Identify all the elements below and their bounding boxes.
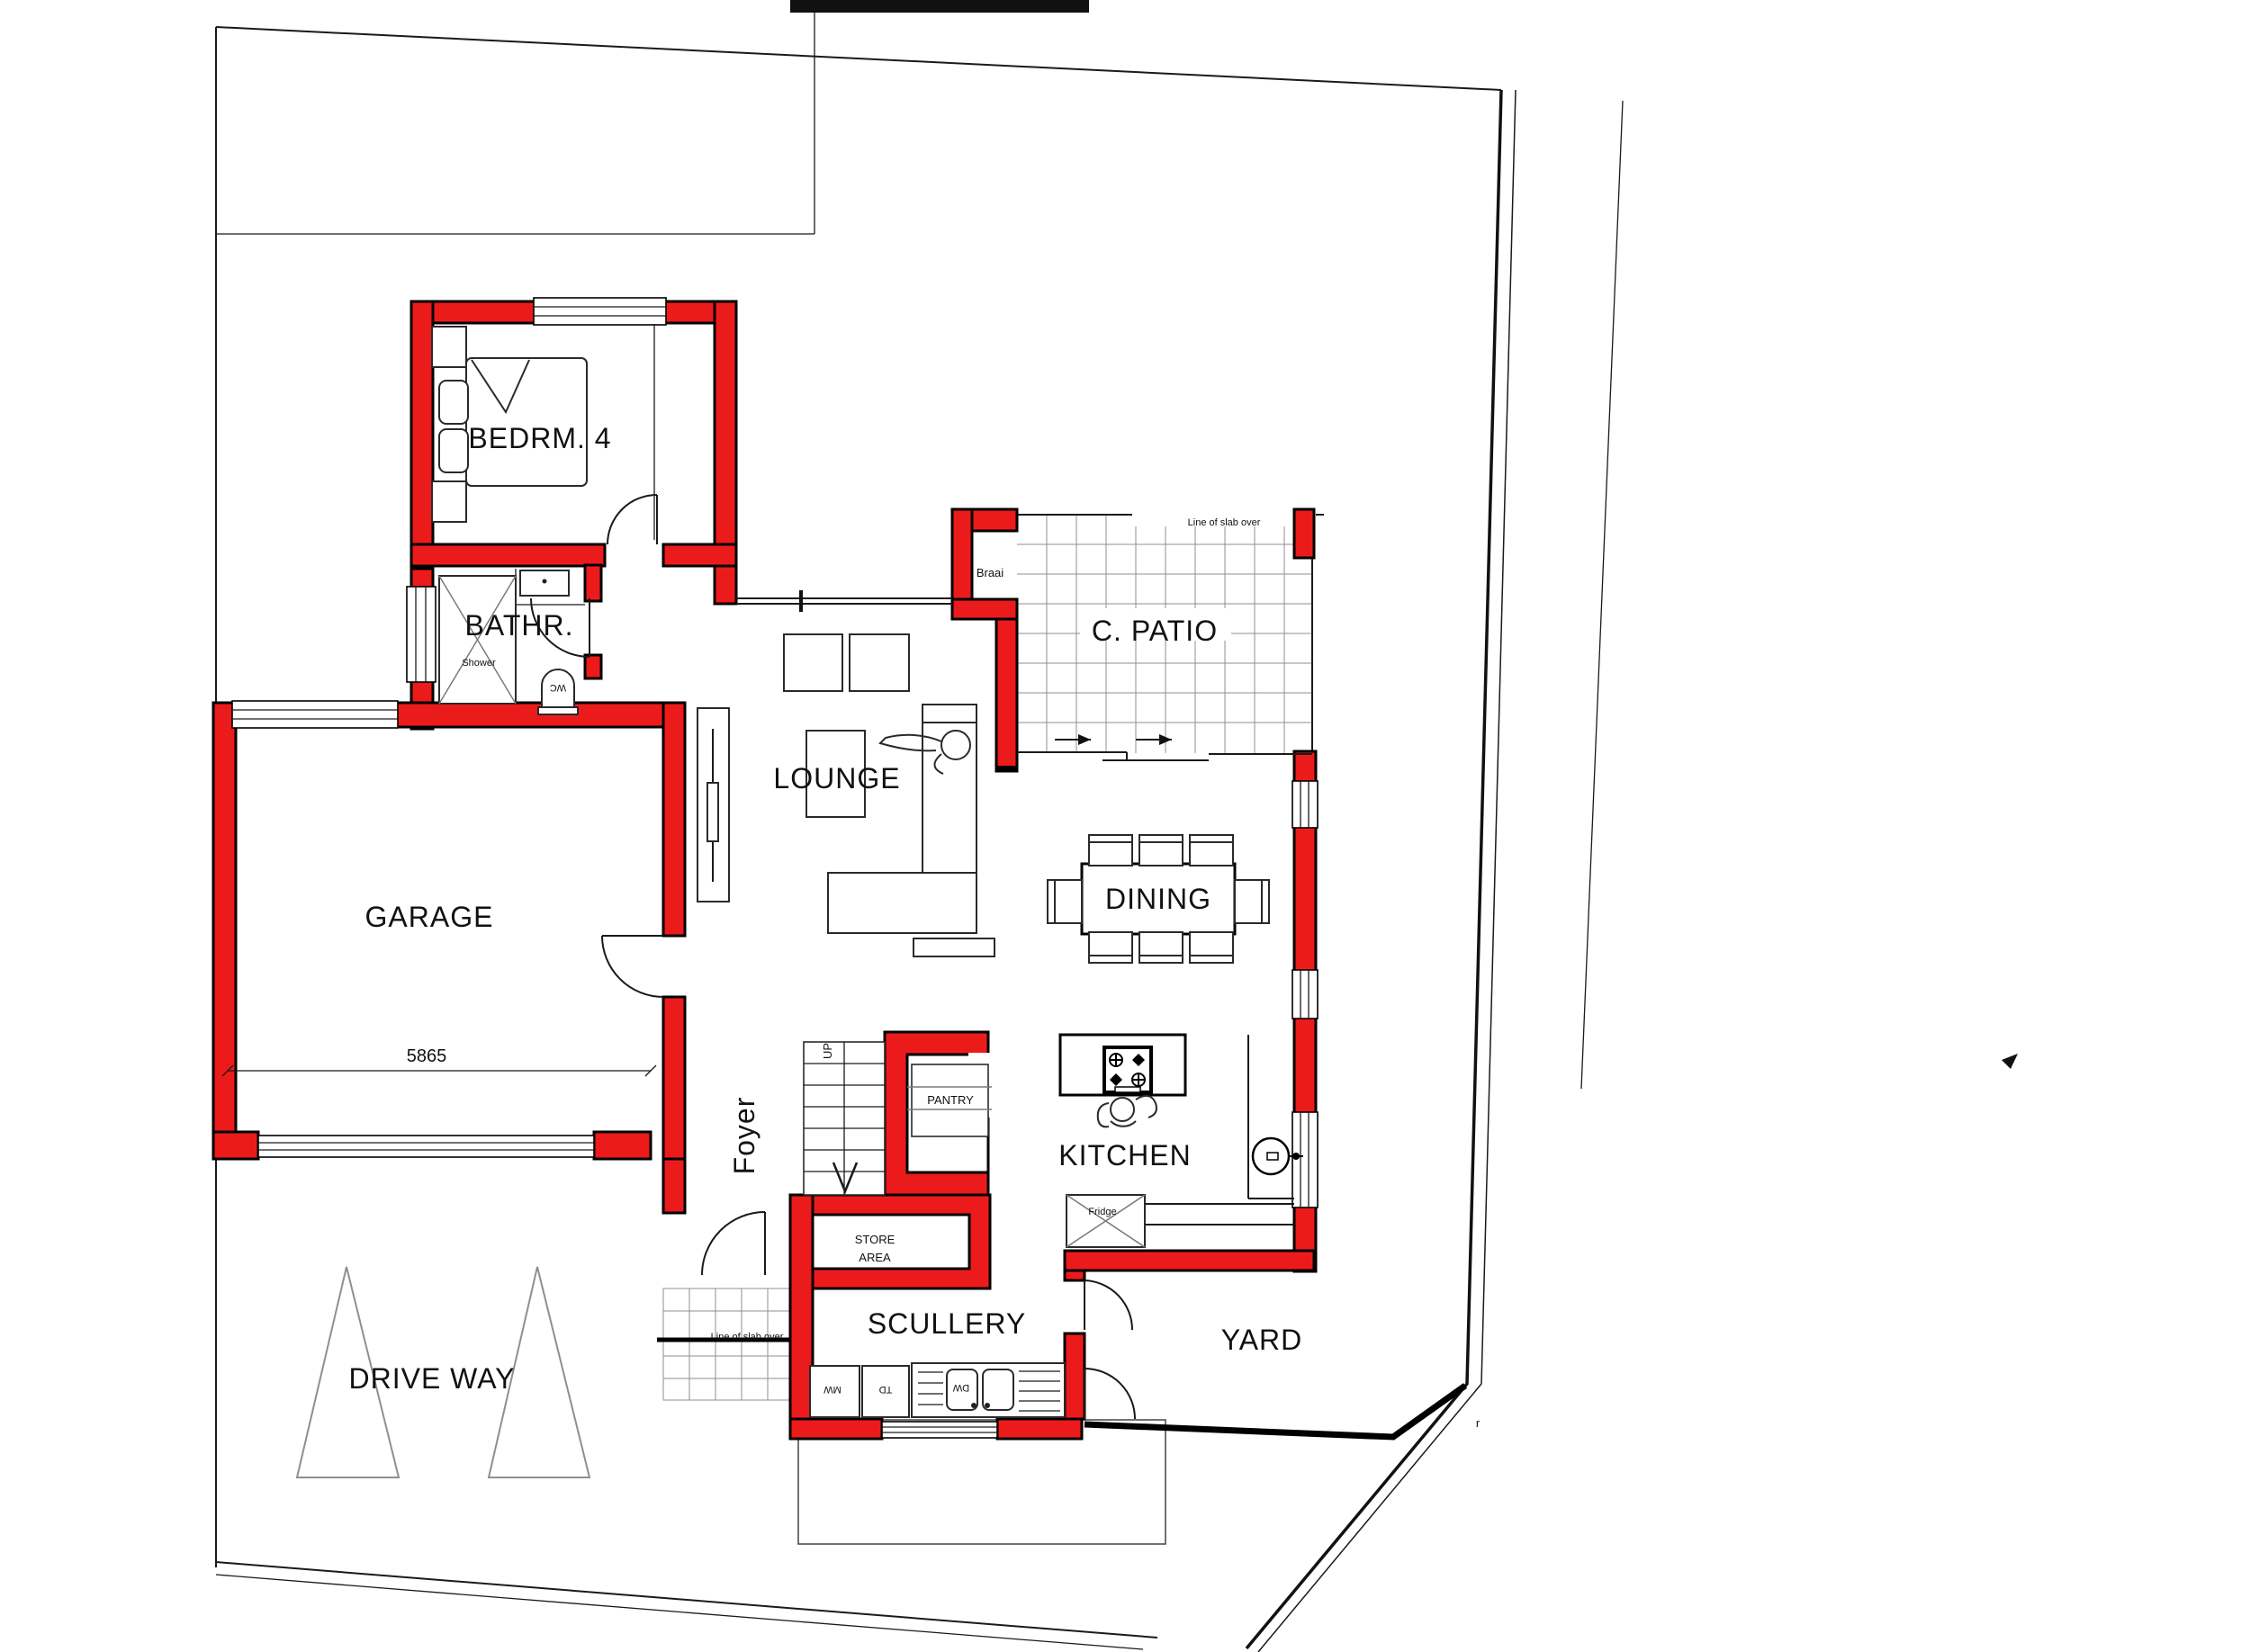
appliance-label-dw: DW bbox=[952, 1382, 969, 1393]
garage-window bbox=[232, 701, 398, 728]
fixture-label-wc: WC bbox=[550, 682, 566, 693]
fridge bbox=[1066, 1195, 1145, 1247]
lounge-side-tables bbox=[784, 634, 909, 691]
room-label-foyer: Foyer bbox=[728, 1097, 760, 1175]
annotation-slab-patio: Line of slab over bbox=[1188, 517, 1261, 528]
bathroom-window bbox=[407, 587, 436, 682]
dining-window-1 bbox=[1292, 781, 1318, 828]
room-label-bathroom: BATHR. bbox=[465, 609, 574, 642]
scullery-window bbox=[882, 1422, 997, 1438]
cursor-mark bbox=[2002, 1054, 2018, 1069]
slide-arrow-2 bbox=[1136, 734, 1172, 745]
room-label-store-1: STORE bbox=[855, 1233, 895, 1246]
yard-door-bottom bbox=[1084, 1369, 1135, 1419]
room-label-driveway: DRIVE WAY bbox=[348, 1362, 515, 1395]
room-label-scullery: SCULLERY bbox=[868, 1307, 1026, 1340]
room-label-store-2: AREA bbox=[859, 1251, 891, 1264]
stair-label-up: UP bbox=[821, 1043, 834, 1059]
yard-wall bbox=[1084, 1386, 1465, 1437]
room-label-dining: DINING bbox=[1105, 883, 1211, 915]
fixture-label-braai: Braai bbox=[976, 566, 1003, 579]
garage-door-internal bbox=[602, 936, 663, 997]
bedroom-door bbox=[607, 495, 657, 544]
scullery-appliances bbox=[810, 1363, 1065, 1417]
dining-window-2 bbox=[1292, 970, 1318, 1019]
porch-tiles bbox=[657, 1288, 796, 1400]
hob bbox=[1104, 1047, 1151, 1092]
room-label-yard: YARD bbox=[1221, 1324, 1303, 1356]
right-boundary bbox=[1246, 90, 1501, 1648]
slide-arrow-1 bbox=[1055, 734, 1091, 745]
floor-plan-canvas: BEDRM. 4 BATHR. Shower WC GARAGE 5865 Fo… bbox=[0, 0, 2259, 1652]
room-label-garage: GARAGE bbox=[365, 901, 494, 933]
room-label-lounge: LOUNGE bbox=[773, 762, 900, 795]
basin bbox=[520, 570, 569, 596]
appliance-label-mw: MW bbox=[823, 1384, 841, 1395]
kitchen-person bbox=[1098, 1096, 1156, 1127]
room-label-kitchen: KITCHEN bbox=[1058, 1139, 1191, 1172]
annotation-corner-mark: r bbox=[1476, 1416, 1480, 1430]
site-boundary bbox=[216, 0, 2018, 1652]
tv-unit bbox=[697, 708, 729, 902]
annotation-slab-porch: Line of slab over bbox=[711, 1332, 784, 1342]
bedroom-window bbox=[534, 298, 666, 325]
room-label-patio: C. PATIO bbox=[1092, 615, 1218, 647]
garage-door bbox=[258, 1136, 594, 1157]
fixture-label-shower: Shower bbox=[462, 658, 496, 669]
yard-door-top bbox=[1084, 1280, 1132, 1330]
room-label-bedroom4: BEDRM. 4 bbox=[468, 422, 611, 454]
title-block-edge bbox=[790, 0, 1089, 13]
fixture-label-fridge: Fridge bbox=[1088, 1207, 1116, 1217]
room-label-pantry: PANTRY bbox=[927, 1093, 974, 1107]
appliance-label-td: TD bbox=[879, 1384, 893, 1395]
dimension-garage: 5865 bbox=[407, 1046, 447, 1066]
staircase bbox=[804, 1042, 885, 1195]
kitchen-window bbox=[1292, 1112, 1318, 1208]
floor-plan-page: BEDRM. 4 BATHR. Shower WC GARAGE 5865 Fo… bbox=[0, 0, 2259, 1652]
front-door bbox=[702, 1212, 765, 1275]
